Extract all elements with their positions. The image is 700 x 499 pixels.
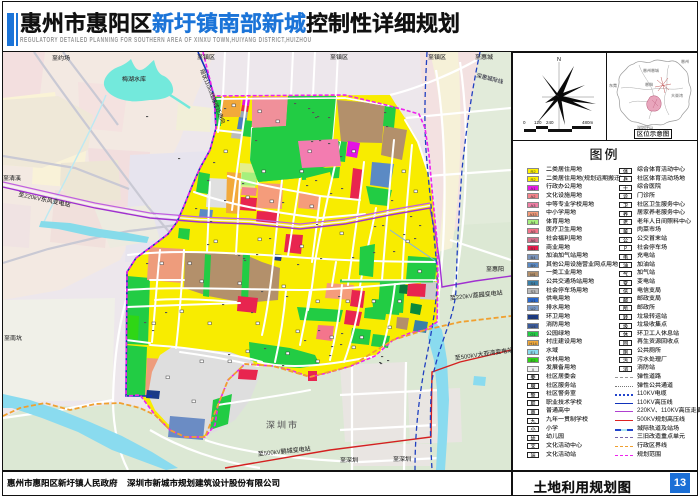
svg-text:120: 120 [534, 120, 542, 125]
svg-text:梅湖水库: 梅湖水库 [122, 75, 146, 83]
svg-text:240: 240 [546, 120, 554, 125]
svg-text:至镇区: 至镇区 [197, 53, 215, 61]
svg-text:至镇区: 至镇区 [330, 53, 348, 61]
svg-text:480m: 480m [582, 120, 594, 125]
svg-text:至约场: 至约场 [52, 54, 70, 62]
svg-text:惠阳: 惠阳 [645, 82, 653, 87]
svg-text:0: 0 [523, 120, 526, 125]
svg-text:至深圳: 至深圳 [340, 457, 358, 464]
svg-text:N: N [557, 57, 561, 63]
svg-text:至惠城: 至惠城 [475, 53, 493, 61]
svg-text:惠州: 惠州 [681, 59, 689, 64]
svg-text:至南坑: 至南坑 [4, 334, 22, 342]
svg-text:惠州惠城: 惠州惠城 [643, 68, 659, 73]
svg-text:至深圳: 至深圳 [393, 456, 411, 463]
svg-text:东莞: 东莞 [609, 83, 617, 88]
svg-text:大亚湾: 大亚湾 [671, 93, 683, 98]
svg-text:至惠阳: 至惠阳 [486, 265, 504, 273]
svg-text:至镇区: 至镇区 [428, 53, 446, 61]
svg-text:深圳市: 深圳市 [266, 420, 299, 430]
svg-text:至清溪: 至清溪 [3, 174, 21, 182]
